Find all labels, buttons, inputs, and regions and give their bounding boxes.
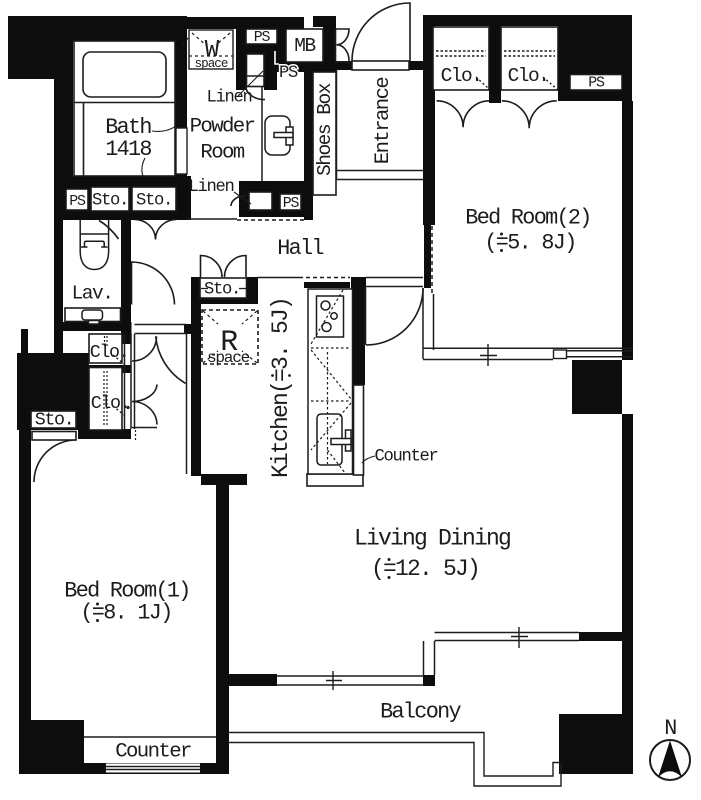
svg-text:Hall: Hall bbox=[277, 236, 323, 261]
svg-text:Sto.: Sto. bbox=[35, 410, 73, 431]
svg-text:Sto.: Sto. bbox=[204, 281, 240, 300]
svg-text:Lav.: Lav. bbox=[72, 283, 113, 305]
svg-text:MB: MB bbox=[294, 35, 315, 57]
svg-text:Sto.: Sto. bbox=[136, 192, 172, 211]
svg-text:Sto.: Sto. bbox=[92, 192, 128, 211]
svg-text:Clo.: Clo. bbox=[508, 65, 549, 87]
svg-text:1418: 1418 bbox=[105, 137, 151, 162]
svg-text:Clo.: Clo. bbox=[90, 342, 128, 363]
svg-text:Counter: Counter bbox=[115, 741, 191, 764]
svg-text:N: N bbox=[664, 716, 676, 741]
svg-text:space: space bbox=[195, 57, 228, 71]
svg-text:Linen: Linen bbox=[207, 89, 252, 108]
svg-text:PS: PS bbox=[254, 30, 271, 46]
svg-text:(=12. 5J): (=12. 5J) bbox=[371, 556, 479, 582]
svg-text:Linen: Linen bbox=[189, 178, 234, 197]
svg-text:space: space bbox=[207, 349, 250, 367]
svg-text:Powder: Powder bbox=[190, 116, 255, 139]
svg-text:(=5. 8J): (=5. 8J) bbox=[484, 231, 575, 256]
svg-text:Clo.: Clo. bbox=[91, 393, 129, 414]
svg-text:PS: PS bbox=[588, 76, 605, 92]
svg-text:PS: PS bbox=[283, 196, 300, 212]
svg-text:Living Dining: Living Dining bbox=[354, 526, 510, 552]
svg-text:Room: Room bbox=[200, 142, 244, 165]
svg-text:PS: PS bbox=[69, 194, 86, 210]
svg-text:Shoes Box: Shoes Box bbox=[314, 83, 336, 176]
svg-text:(=8. 1J): (=8. 1J) bbox=[80, 601, 171, 626]
svg-text:Entrance: Entrance bbox=[372, 77, 395, 165]
svg-text:Bed Room(2): Bed Room(2) bbox=[465, 206, 590, 231]
svg-text:Kitchen(=3. 5J): Kitchen(=3. 5J) bbox=[268, 298, 294, 478]
svg-text:Counter: Counter bbox=[375, 448, 438, 467]
svg-text:PS: PS bbox=[279, 64, 298, 83]
svg-text:Balcony: Balcony bbox=[380, 700, 461, 725]
svg-text:Clo.: Clo. bbox=[441, 65, 482, 87]
